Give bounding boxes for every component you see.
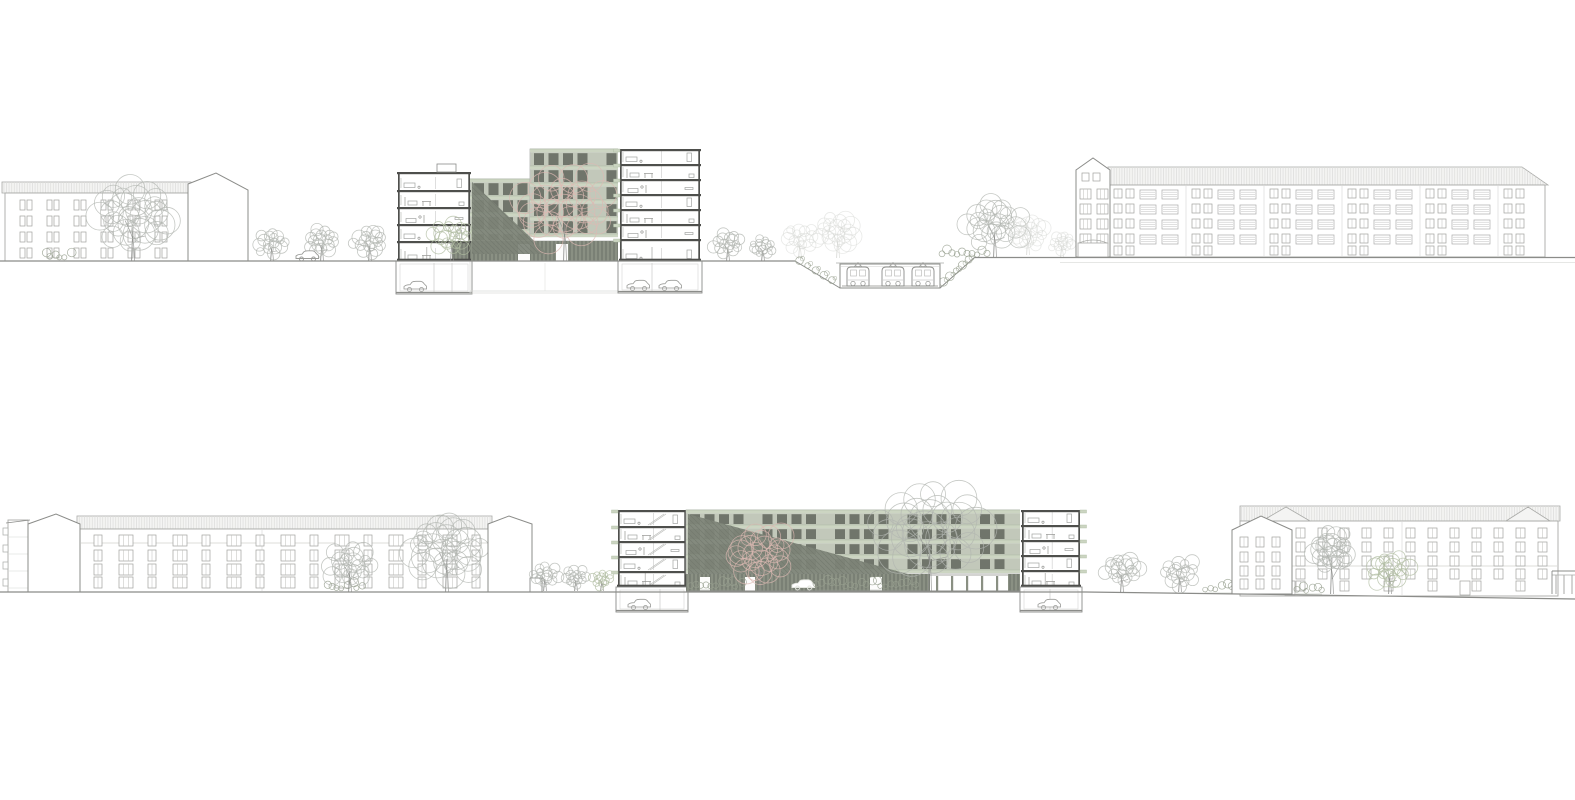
building-east-elevation [1108, 167, 1548, 257]
gable-wall-east [488, 516, 532, 592]
section-wing-west [612, 506, 689, 612]
street-tree-6 [588, 570, 613, 591]
street-car [296, 251, 319, 261]
street-tree-5 [561, 565, 590, 591]
upper-street-section [0, 145, 1575, 294]
tree-east-1 [707, 228, 744, 261]
railway-cutting [795, 245, 990, 288]
section-wing-east [1020, 506, 1087, 612]
building-west-elevation [2, 182, 191, 261]
gable-wing-front [1232, 516, 1292, 594]
courtyard-tree-green [426, 216, 472, 261]
street-tree-1 [253, 229, 289, 261]
tree-east-2 [750, 235, 776, 261]
street-tree-8 [1161, 555, 1200, 594]
section-strip-far-west [3, 520, 30, 592]
street-tree-3 [348, 225, 385, 261]
basement-middle-faint [470, 261, 620, 293]
architectural-sections-sheet [0, 0, 1575, 800]
tree-embankment [957, 194, 1030, 257]
street-tree-7 [1098, 552, 1146, 592]
section-wing-east [614, 145, 703, 293]
lower-street-section [0, 480, 1575, 612]
tree-far-faint [1049, 232, 1076, 257]
sections-drawing [0, 0, 1575, 800]
gable-wall-west [28, 514, 80, 592]
gable-end-wall-west [188, 173, 248, 261]
headhouse-gable [1076, 158, 1110, 257]
tree-embankment-faint [1009, 215, 1051, 255]
sections-root [0, 145, 1575, 612]
